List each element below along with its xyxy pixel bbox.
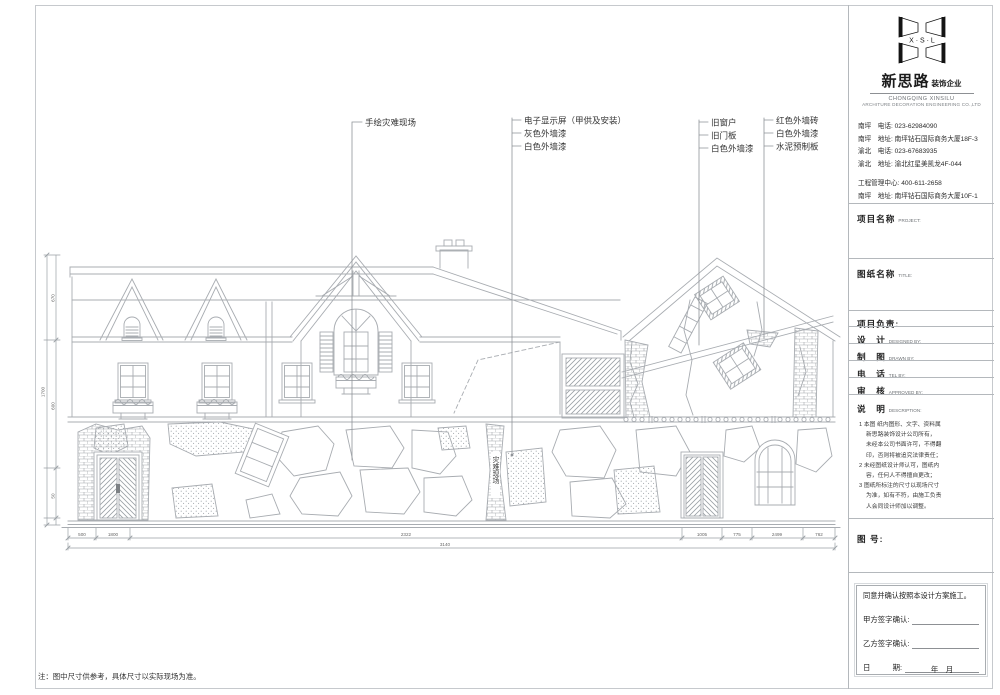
signoff-box: 同意并确认按照本设计方案施工。 甲方签字确认: 乙方签字确认: 日 期: 年 月	[856, 585, 986, 675]
section-description: 说 明DESCRIPTION: 1 本图 纸内图形、文字、资料属 新思路装饰设计…	[849, 394, 994, 518]
project-name-label: 项目名称	[857, 214, 895, 224]
brand-name-en2: ARCHITURE DECORATION ENGINEERING CO.,LTD	[849, 102, 994, 107]
windows	[113, 302, 435, 419]
party-b-signature-line	[912, 640, 979, 649]
dim-left-670: 670	[51, 294, 56, 302]
date-label: 日 期:	[863, 662, 902, 673]
description-line: 3 图纸所标注的尺寸以现场尺寸	[859, 481, 989, 491]
description-line: 1 本图 纸内图形、文字、资料属	[859, 420, 989, 430]
dim-bottom-total: 3140	[440, 542, 451, 547]
logo-letters: X · S · L	[909, 38, 935, 45]
disaster-band: 灾难现场	[62, 422, 840, 528]
callout-label: 手绘灾难现场	[365, 118, 416, 128]
description-line: 容，任何人不得擅自更改；	[859, 471, 989, 481]
xsl-logo-icon: X · S · L	[891, 15, 953, 65]
sheet-title-label: 图纸名称	[857, 269, 895, 279]
party-b-label: 乙方签字确认:	[863, 638, 909, 649]
description-line: 人会同设计师加以调整。	[859, 502, 989, 512]
brand-rule	[870, 93, 974, 94]
dim-2499: 2499	[772, 532, 783, 537]
sheet-title-label-en: TITLE:	[898, 273, 912, 278]
collapsed-wing	[622, 258, 840, 417]
section-project-leader: 项目负责:	[849, 310, 994, 326]
callout-disaster-scene: 手绘灾难现场	[352, 118, 416, 461]
callout-label: 旧门板	[711, 131, 737, 141]
title-block-panel: X · S · L 新思路 装饰企业 CHONGQING XINSILU ARC…	[848, 5, 994, 689]
section-signoff: 同意并确认按照本设计方案施工。 甲方签字确认: 乙方签字确认: 日 期: 年 月	[849, 572, 994, 689]
signoff-agree-text: 同意并确认按照本设计方案施工。	[863, 591, 979, 601]
chimney	[436, 240, 472, 268]
dim-775: 775	[733, 532, 741, 537]
description-label: 说 明	[857, 404, 886, 414]
description-line: 新思路装饰设计公司所有，	[859, 430, 989, 440]
elevation-drawing: 1700 670 600 50 500 1800 2322 1005 775 2…	[35, 5, 848, 690]
contact-line: 南坪 地址: 南坪钻石国际商务大厦10F-1	[858, 191, 990, 204]
date-line: 年 月	[905, 664, 979, 673]
contact-line: 渝北 地址: 渝北红星美凯龙4F-044	[858, 159, 990, 172]
contact-line: 工程管理中心: 400-611-2658	[858, 178, 990, 191]
contact-info: 南坪 电话: 023-62984090 南坪 地址: 南坪钻石国际商务大厦18F…	[858, 121, 990, 203]
dim-left-total: 1700	[41, 386, 46, 397]
left-door	[78, 424, 150, 520]
section-sheet-title: 图纸名称TITLE:	[849, 258, 994, 310]
contact-line: 南坪 电话: 023-62984090	[858, 121, 990, 134]
section-approved-by: 审 核APPROVED BY:	[849, 377, 994, 394]
dim-762: 762	[815, 532, 823, 537]
figure-number-label: 图 号:	[857, 534, 883, 544]
dim-left-50: 50	[51, 493, 56, 499]
left-gables	[100, 279, 247, 341]
dim-500: 500	[78, 532, 86, 537]
dim-1005: 1005	[697, 532, 708, 537]
description-label-en: DESCRIPTION:	[889, 408, 922, 413]
callout-label: 白色外墙漆	[524, 142, 567, 152]
callout-label: 白色外墙漆	[711, 144, 754, 154]
sheet-note: 注：图中尺寸供参考，具体尺寸以实际现场为准。	[38, 671, 201, 682]
callout-label: 红色外墙砖	[776, 116, 819, 126]
disaster-vertical-tag: 灾难现场	[492, 455, 500, 485]
project-name-label-en: PROJECT:	[898, 218, 920, 223]
callout-label: 旧窗户	[711, 118, 737, 128]
brand-name-tag: 装饰企业	[929, 79, 961, 88]
section-drawn-by: 制 图DRAWN BY:	[849, 343, 994, 360]
drawing-sheet: { "brand": { "logo_letters": "X · S · L"…	[0, 0, 1000, 695]
section-designed-by: 设 计DESIGNED BY:	[849, 326, 994, 343]
party-a-signature-line	[912, 616, 979, 625]
contact-line: 渝北 电话: 023-67683935	[858, 146, 990, 159]
contact-line: 南坪 地址: 南坪钻石国际商务大厦18F-3	[858, 134, 990, 147]
callout-label: 水泥预制板	[776, 142, 819, 152]
logo-block: X · S · L 新思路 装饰企业 CHONGQING XINSILU ARC…	[849, 15, 994, 107]
dim-2322: 2322	[401, 532, 412, 537]
description-notes: 1 本图 纸内图形、文字、资料属 新思路装饰设计公司所有， 未经本公司书面许可，…	[849, 417, 994, 512]
arched-window	[755, 440, 795, 505]
section-project-name: 项目名称PROJECT:	[849, 203, 994, 258]
brand-name-cn: 新思路	[881, 73, 929, 90]
house-linework: 灾难现场	[62, 240, 840, 528]
right-door	[681, 452, 723, 518]
callout-label: 电子显示屏（甲供及安装）	[524, 116, 626, 126]
section-tel: 电 话TEL BY:	[849, 360, 994, 377]
callout-label: 白色外墙漆	[776, 129, 819, 139]
description-line: 2 未经图纸设计师认可，图纸内	[859, 461, 989, 471]
description-line: 为准，如有不符，由施工负责	[859, 491, 989, 501]
description-line: 印，否则将被追究法律责任；	[859, 451, 989, 461]
callout-brick-group: 红色外墙砖 白色外墙漆 水泥预制板	[764, 116, 819, 339]
description-line: 未经本公司书面许可，不得翻	[859, 440, 989, 450]
dim-left-600: 600	[51, 402, 56, 410]
floor-band	[68, 417, 835, 423]
callout-label: 灰色外墙漆	[524, 129, 567, 139]
dim-1800: 1800	[108, 532, 119, 537]
section-figure-number: 图 号:	[849, 518, 994, 572]
roof	[70, 267, 621, 417]
party-a-label: 甲方签字确认:	[863, 614, 909, 625]
brick-column: 灾难现场	[486, 424, 506, 520]
display-screen	[454, 342, 624, 418]
